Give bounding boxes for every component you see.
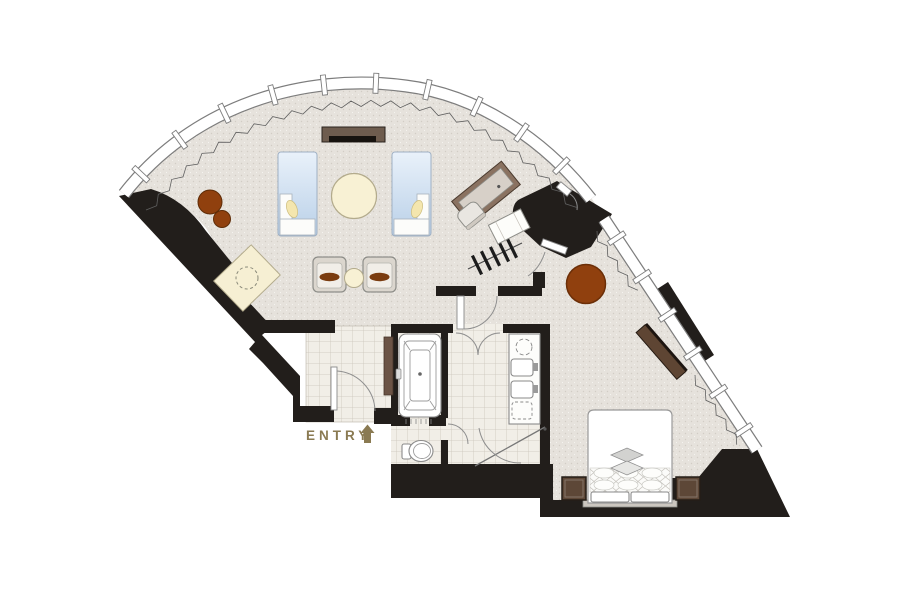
chair-cushion	[320, 273, 340, 281]
sink-1	[511, 359, 533, 376]
side-table	[345, 269, 364, 288]
tub-faucet	[396, 369, 401, 379]
corridor-wall-left	[436, 286, 476, 296]
sofa-left	[278, 152, 317, 236]
tv-screen	[329, 136, 376, 142]
bedroom-left-wall	[540, 464, 553, 517]
tv-console	[322, 127, 385, 142]
nightstand-right	[676, 477, 700, 500]
vanity	[509, 334, 540, 424]
entry-wardrobe	[384, 337, 393, 395]
armchair-right	[363, 257, 396, 292]
dining-table	[567, 265, 606, 304]
stool-large	[198, 190, 222, 214]
toilet-divider-stub	[441, 440, 448, 466]
floor-plan-canvas: ENTRY	[0, 0, 900, 600]
sofa-right	[392, 152, 431, 236]
entry-annotation: ENTRY	[306, 425, 375, 444]
toilet	[402, 441, 433, 462]
bath-right-wall	[540, 324, 550, 470]
faucet-1	[533, 363, 538, 371]
bed	[583, 410, 677, 507]
shower-door-handle	[543, 427, 546, 430]
living-corridor-door	[457, 296, 464, 329]
faucet-2	[533, 385, 538, 393]
armchair-left	[313, 257, 346, 292]
entry-top-wall	[263, 320, 335, 333]
bath-bottom-wall	[391, 464, 550, 498]
entry-label: ENTRY	[306, 428, 371, 443]
coffee-table	[332, 174, 377, 219]
entry-door	[331, 367, 337, 410]
sink-2	[511, 381, 533, 398]
stool-small	[214, 211, 231, 228]
nightstand-left	[562, 477, 586, 500]
floor-plan-svg: ENTRY	[0, 0, 900, 600]
chair-cushion	[370, 273, 390, 281]
tub-divider-wall	[441, 330, 448, 418]
bathtub	[396, 334, 441, 424]
corridor-stub	[533, 272, 545, 288]
